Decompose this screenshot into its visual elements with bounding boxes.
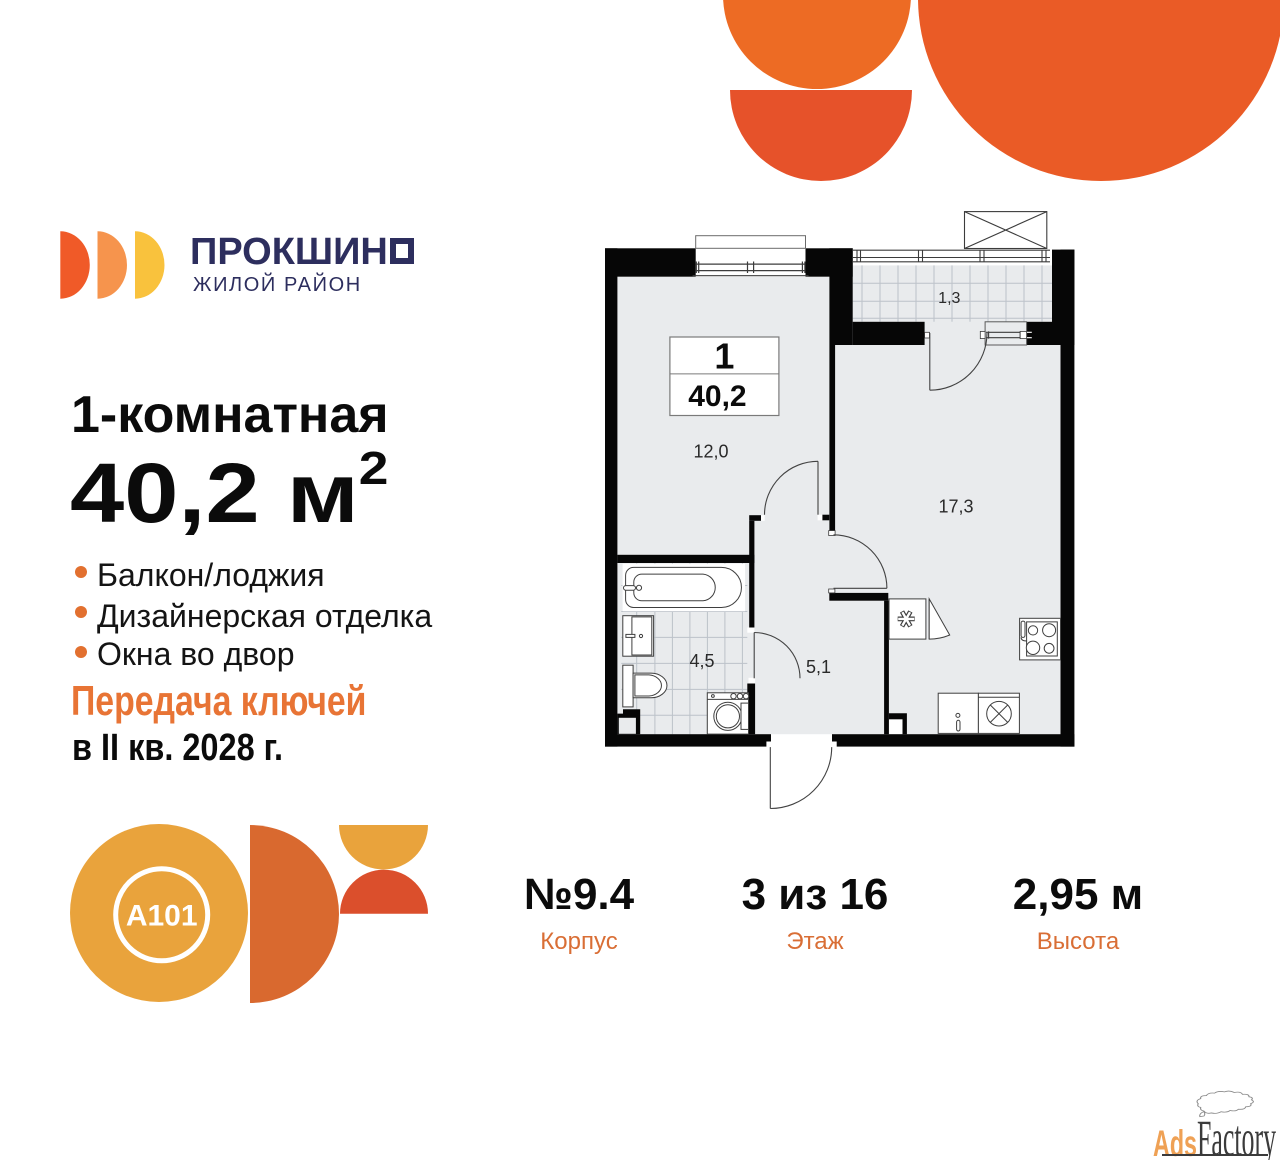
svg-text:1: 1: [714, 335, 734, 376]
svg-text:4,5: 4,5: [689, 651, 714, 671]
svg-text:17,3: 17,3: [938, 496, 973, 516]
svg-text:1,3: 1,3: [938, 290, 960, 307]
svg-text:5,1: 5,1: [806, 657, 831, 677]
svg-text:40,2: 40,2: [688, 380, 746, 413]
svg-text:12,0: 12,0: [693, 442, 728, 462]
svg-text:Factory: Factory: [1197, 1111, 1276, 1160]
